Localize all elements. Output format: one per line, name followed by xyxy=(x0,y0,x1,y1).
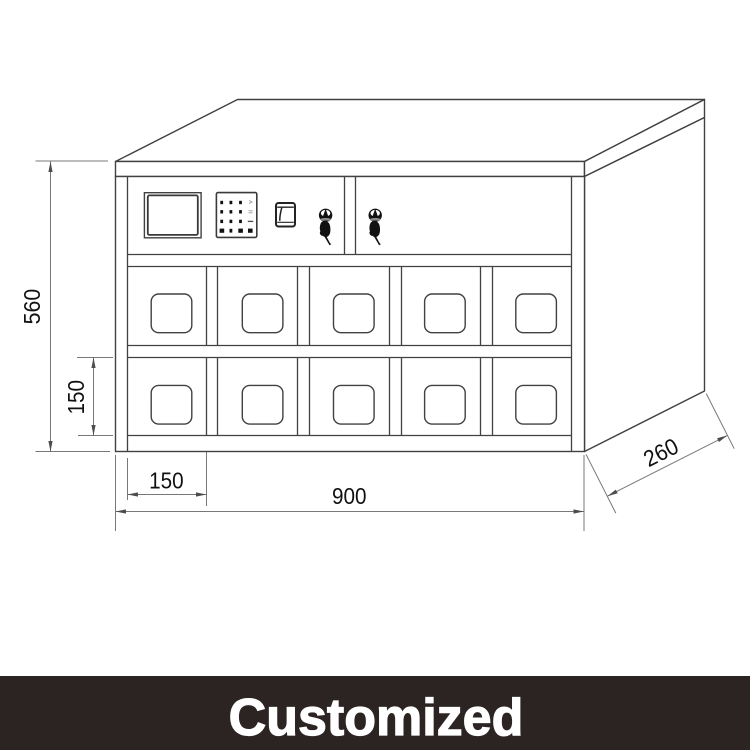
svg-text:150: 150 xyxy=(63,380,89,415)
svg-text:260: 260 xyxy=(639,433,682,472)
svg-text:560: 560 xyxy=(19,289,45,325)
svg-text:900: 900 xyxy=(332,483,367,509)
svg-text:Customized: Customized xyxy=(229,689,524,747)
svg-text:150: 150 xyxy=(149,467,184,493)
